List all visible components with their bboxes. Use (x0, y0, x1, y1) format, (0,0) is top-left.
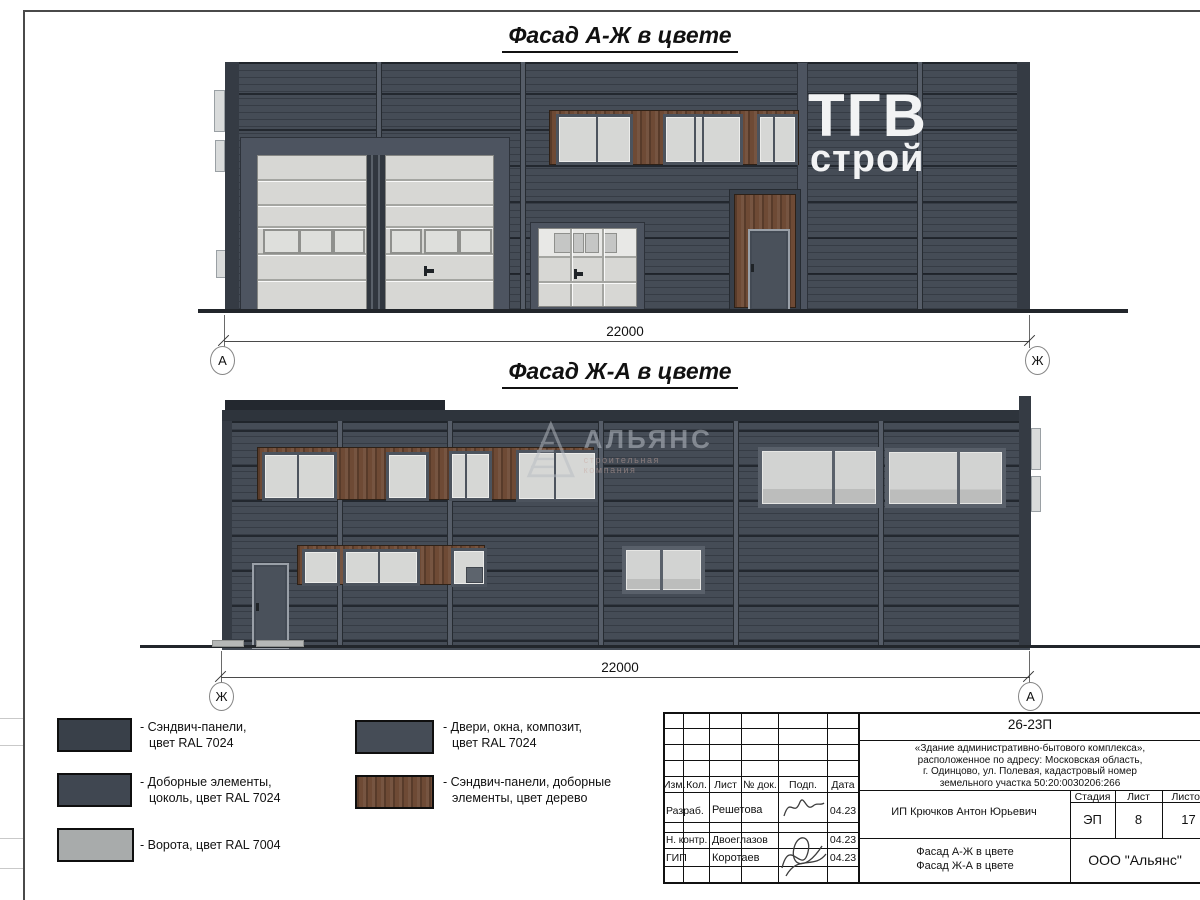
panel-joint-line (222, 535, 1030, 537)
stamp-row-line (663, 792, 858, 793)
window-mullion (773, 117, 775, 162)
window-mullion (832, 451, 835, 504)
window-mullion (596, 117, 598, 162)
window (262, 452, 337, 501)
stamp-col-dok: № док. (742, 779, 778, 791)
gate-section-line (386, 204, 493, 206)
stamp-role: Разраб. (666, 805, 710, 817)
dimension-label: 22000 (545, 324, 705, 339)
company-watermark: АЛЬЯНС строительная компания (526, 418, 716, 482)
legend-swatch-elements-ral7024 (57, 773, 132, 807)
legend-label: - Сэндвич-панели, цвет RAL 7024 (140, 719, 246, 752)
legend-label: - Двери, окна, композит, цвет RAL 7024 (443, 719, 582, 752)
stamp-column-line (1070, 790, 1071, 882)
legend-label: - Сэндвич-панели, доборные элементы, цве… (443, 774, 611, 807)
stamp-row-line (860, 740, 1200, 741)
window (622, 546, 705, 594)
alliance-triangle-logo-icon (526, 421, 576, 479)
stamp-date: 04.23 (828, 852, 858, 864)
axis-marker-zh: Ж (209, 682, 234, 711)
legend-label: - Ворота, цвет RAL 7004 (140, 837, 281, 853)
stamp-row-line (663, 728, 858, 729)
stamp-row-line (860, 838, 1200, 839)
gate-window (263, 229, 300, 254)
gate-section-line (386, 179, 493, 181)
extension-line (221, 651, 222, 684)
gate-window (459, 229, 492, 254)
entry-door (748, 229, 790, 312)
ground-line (198, 309, 1128, 313)
gates-middle-post (365, 155, 385, 310)
stamp-col-izm: Изм. (663, 779, 683, 791)
facade-a-zh-title: Фасад А-Ж в цвете (320, 22, 920, 49)
legend-swatch-sandwich-ral7024 (57, 718, 132, 752)
gate-section-line (258, 204, 366, 206)
window (386, 452, 429, 501)
sectional-gate-left (257, 155, 367, 310)
sheet-frame-top (23, 10, 1200, 12)
stamp-doc-number: 26-23П (860, 717, 1200, 732)
gate-section-line (386, 226, 493, 228)
entry-step (256, 640, 304, 647)
legend-label: - Доборные элементы, цоколь, цвет RAL 70… (140, 774, 281, 807)
gate-window (299, 229, 333, 254)
stamp-name: Коротаев (712, 852, 776, 864)
legend-label-line: цоколь, цвет RAL 7024 (140, 790, 281, 806)
corner-trim-right (1017, 62, 1030, 310)
legend-swatch-doors-ral7024 (355, 720, 434, 754)
window (885, 448, 1006, 508)
drawing-sheet: Фасад А-Ж в цвете ТГВ строй (0, 0, 1200, 900)
panel-seam (520, 62, 526, 310)
gates-middle-post-line (378, 155, 380, 310)
wicket-mullion (602, 229, 604, 306)
stamp-row-line (663, 822, 858, 823)
dimension-line (221, 677, 1030, 678)
legend-swatch-gates-ral7004 (57, 828, 134, 862)
facade-zh-a-title: Фасад Ж-А в цвете (320, 358, 920, 385)
window-mullion (702, 117, 704, 162)
corner-trim-left (225, 62, 239, 310)
window-mullion (694, 117, 696, 162)
wicket-window (554, 233, 571, 253)
margin-line (0, 718, 23, 719)
margin-line (0, 838, 23, 839)
stamp-row-line (663, 760, 858, 761)
panel-joint-line (222, 605, 1030, 607)
window (757, 114, 798, 165)
panel-seam (376, 62, 382, 137)
wicket-section-line (539, 281, 636, 283)
gate-section-line (386, 279, 493, 281)
stamp-border (663, 712, 665, 884)
window (302, 549, 340, 586)
stamp-col-kol: Кол. (684, 779, 709, 791)
sheet-frame-left (23, 10, 25, 900)
legend-label-line: - Ворота, цвет RAL 7004 (140, 837, 281, 853)
stamp-description-line: г. Одинцово, ул. Полевая, кадастровый но… (862, 766, 1198, 778)
panel-joint-line (222, 640, 1030, 642)
window (556, 114, 633, 165)
watermark-text: АЛЬЯНС строительная компания (584, 426, 716, 475)
facade-zh-a-title-text: Фасад Ж-А в цвете (502, 358, 737, 389)
window (343, 549, 420, 586)
stamp-name: Решетова (712, 804, 776, 816)
corner-trim-right (1019, 396, 1031, 648)
axis-marker-a: А (210, 346, 235, 375)
stamp-sheets-label: Листов (1162, 791, 1200, 803)
stamp-organization: ООО "Альянс" (1070, 852, 1200, 868)
dimension-label: 22000 (540, 660, 700, 675)
wicket-mullion (570, 229, 572, 306)
window (758, 447, 880, 508)
stamp-role: ГИП (666, 852, 710, 864)
gate-window (333, 229, 365, 254)
stamp-sheet-value: 8 (1115, 812, 1162, 827)
signature (776, 824, 830, 880)
corner-trim-left (222, 421, 232, 648)
window-corner-panel (466, 567, 483, 583)
watermark-subtitle: строительная компания (584, 455, 716, 475)
dimension-line (224, 341, 1030, 342)
stamp-sheet-title-line2: Фасад Ж-А в цвете (860, 860, 1070, 872)
entry-door-handle (751, 264, 754, 272)
window-mullion (957, 452, 960, 504)
window (449, 451, 492, 501)
window (663, 114, 743, 165)
facade-a-zh-title-text: Фасад А-Ж в цвете (502, 22, 737, 53)
margin-line (0, 745, 23, 746)
legend-label-line: - Сэндвич-панели, (140, 719, 246, 735)
stamp-border (663, 882, 1200, 884)
legend-label-line: - Двери, окна, композит, (443, 719, 582, 735)
stamp-description-line: расположенное по адресу: Московская обла… (862, 755, 1198, 767)
extension-line (224, 315, 225, 348)
extension-line (1029, 651, 1030, 684)
stamp-row-line (663, 776, 858, 777)
stamp-date: 04.23 (828, 805, 858, 817)
stamp-role: Н. контр. (666, 835, 712, 846)
legend-label-line: элементы, цвет дерево (443, 790, 611, 806)
window-mullion (378, 552, 380, 583)
stamp-date: 04.23 (828, 834, 858, 846)
sectional-gate-right (385, 155, 494, 310)
window-mullion (465, 454, 467, 498)
stamp-sheet-label: Лист (1115, 791, 1162, 803)
wicket-gate (538, 228, 637, 307)
gate-section-line (258, 226, 366, 228)
stamp-description-line: «Здание административно-бытового комплек… (862, 743, 1198, 755)
facade-sign-line1: ТГВ (808, 86, 928, 146)
stamp-stage-value: ЭП (1070, 812, 1115, 827)
legend-label-line: цвет RAL 7024 (443, 735, 582, 751)
axis-marker-a: А (1018, 682, 1043, 711)
gate-handle (424, 266, 427, 276)
gate-window (424, 229, 459, 254)
stamp-project-description: «Здание административно-бытового комплек… (862, 743, 1198, 789)
window-mullion (297, 455, 299, 498)
stamp-border (663, 712, 1200, 714)
stamp-row-line (663, 744, 858, 745)
axis-marker-zh: Ж (1025, 346, 1050, 375)
stamp-stage-label: Стадия (1070, 791, 1115, 803)
gate-window (390, 229, 422, 254)
legend-label-line: - Сэндвич-панели, доборные (443, 774, 611, 790)
downpipe (215, 140, 225, 172)
facade-sign-line2: строй (810, 140, 925, 178)
downpipe (214, 90, 225, 132)
watermark-name: АЛЬЯНС (584, 426, 716, 452)
stamp-description-line: земельного участка 50:20:0030206:266 (862, 778, 1198, 790)
gates-middle-post-line (371, 155, 373, 310)
downpipe (1031, 428, 1041, 470)
stamp-col-podp: Подп. (779, 779, 827, 791)
stamp-client: ИП Крючков Антон Юрьевич (860, 806, 1068, 818)
stamp-sheet-title-line1: Фасад А-Ж в цвете (860, 846, 1070, 858)
stamp-col-list: Лист (710, 779, 741, 791)
legend-swatch-wood (355, 775, 434, 809)
wicket-window (602, 233, 617, 253)
wicket-window (585, 233, 599, 253)
wicket-handle (574, 269, 577, 279)
gate-section-line (258, 179, 366, 181)
entry-step (212, 640, 244, 647)
signature (780, 792, 826, 822)
panel-joint-line (508, 165, 1030, 167)
panel-seam (733, 421, 739, 648)
gate-section-line (258, 279, 366, 281)
stamp-name: Двоеглазов (712, 834, 778, 846)
downpipe (1031, 476, 1041, 512)
stamp-sheets-value: 17 (1162, 812, 1200, 827)
stamp-col-data: Дата (828, 779, 858, 791)
legend-label-line: цвет RAL 7024 (140, 735, 246, 751)
extension-line (1029, 315, 1030, 348)
wicket-window (573, 233, 584, 253)
margin-line (0, 868, 23, 869)
window-mullion (660, 550, 663, 590)
legend-label-line: - Доборные элементы, (140, 774, 281, 790)
entry-door-handle (256, 603, 259, 611)
